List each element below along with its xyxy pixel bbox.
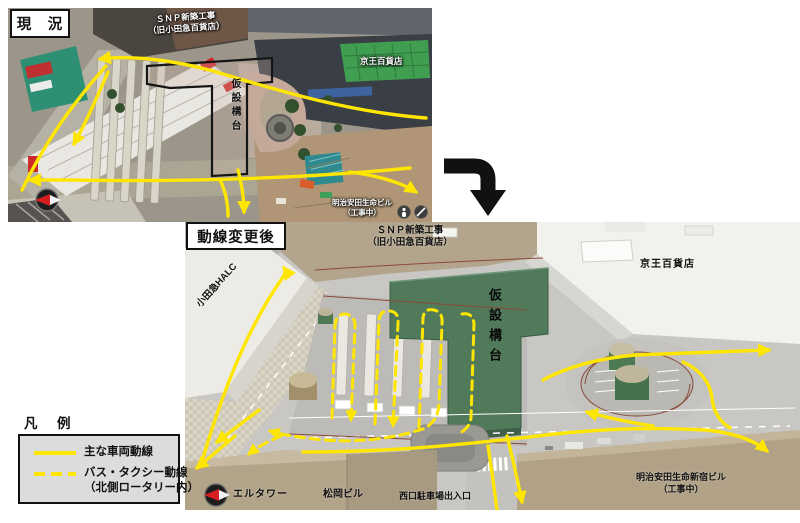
current-caption-box: 現 況 <box>10 9 70 38</box>
legend-item2-line2: （北側ロータリー内） <box>84 482 199 494</box>
meiji-line1: 明治安田生命新宿ビル <box>636 472 726 482</box>
construction-flow-notice: ＳＮＰ新築工事 （旧小田急百貨店） 京王百貨店 仮設構台 明治安田生命ビル （工… <box>0 0 800 523</box>
legend-title: 凡 例 <box>24 412 74 432</box>
legend-item1-label: 主な車両動線 <box>84 445 153 459</box>
legend-item-main-flow: 主な車両動線 <box>32 445 178 459</box>
legend-item-bus-taxi-flow: バス・タクシー動線 （北側ロータリー内） <box>32 466 178 495</box>
meiji-line2: （工事中） <box>658 484 703 494</box>
solid-line-swatch <box>34 451 76 455</box>
snp-line1: ＳＮＰ新築工事 <box>377 225 444 236</box>
meiji-line2: （工事中） <box>343 208 381 217</box>
snp-label-after: ＳＮＰ新築工事 （旧小田急百貨店） <box>320 225 500 250</box>
meiji-label-after: 明治安田生命新宿ビル （工事中） <box>621 472 741 495</box>
kasetsu-label-after: 仮設構台 <box>485 288 504 368</box>
legend-item2-line1: バス・タクシー動線 <box>84 467 188 479</box>
keio-label-after: 京王百貨店 <box>640 258 695 271</box>
matsuoka-label: 松岡ビル <box>323 488 363 501</box>
keio-label-current: 京王百貨店 <box>360 56 403 67</box>
dashed-line-swatch <box>34 472 76 476</box>
meiji-label-current: 明治安田生命ビル （工事中） <box>304 198 420 218</box>
eltower-label: エルタワー <box>233 488 288 501</box>
parking-entrance-label: 西口駐車場出入口 <box>399 491 471 503</box>
current-photo-graphic <box>8 8 432 222</box>
kasetsu-label-current: 仮設構台 <box>227 78 242 134</box>
after-caption-box: 動線変更後 <box>186 222 286 250</box>
after-render-view: ＳＮＰ新築工事 （旧小田急百貨店） 京王百貨店 小田急HALC 仮設構台 エルタ… <box>185 222 800 510</box>
meiji-line1: 明治安田生命ビル <box>332 198 392 207</box>
legend-item2-label: バス・タクシー動線 （北側ロータリー内） <box>84 466 199 495</box>
current-aerial-photo: ＳＮＰ新築工事 （旧小田急百貨店） 京王百貨店 仮設構台 明治安田生命ビル （工… <box>8 8 432 222</box>
legend: 主な車両動線 バス・タクシー動線 （北側ロータリー内） <box>18 434 180 504</box>
snp-line2: （旧小田急百貨店） <box>367 237 453 248</box>
transition-arrow <box>438 150 510 228</box>
